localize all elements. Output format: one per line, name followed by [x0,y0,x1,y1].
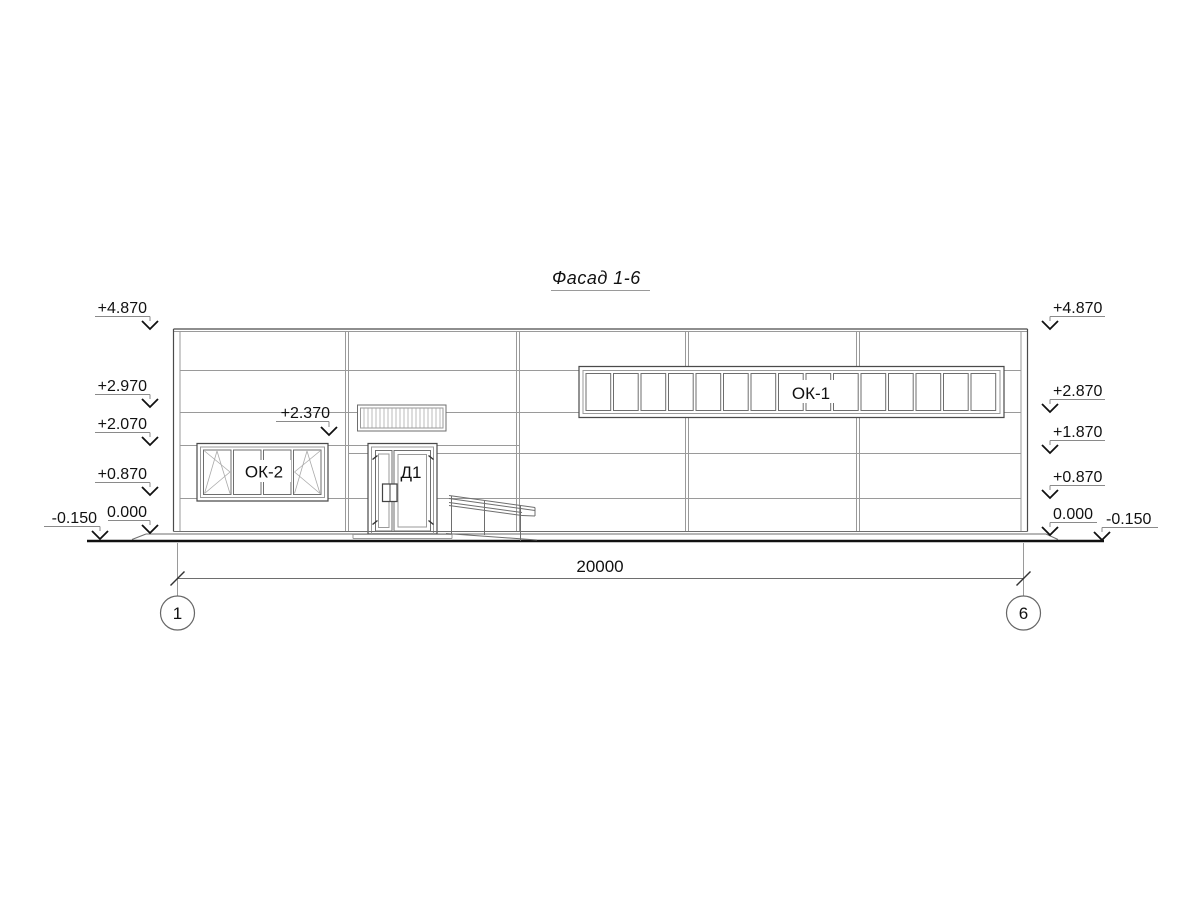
elevation-value: +4.870 [98,300,147,317]
elevation-mark: +4.870 [1042,300,1105,329]
door-threshold [353,535,452,539]
window-ok2: ОК-2 [197,444,328,502]
drawing-sheet: Фасад 1-6 [0,0,1200,900]
elevation-mark: -0.150 [44,510,108,539]
elevation-value: +4.870 [1053,300,1102,317]
elevation-mark: 0.000 [107,504,158,533]
elevation-value: +2.970 [98,378,147,395]
elevation-value: +2.870 [1053,383,1102,400]
strip-window-label: ОК-1 [792,384,830,403]
grid-axis-left-label: 1 [173,604,182,623]
facade-elevation-drawing: Фасад 1-6 [0,0,1200,900]
elevation-value: +0.870 [98,466,147,483]
grid-axes: 1 6 [161,596,1041,630]
elevation-mark: -0.150 [1094,511,1158,540]
elevation-marks-right: +4.870 +2.870 +1.870 +0.870 0.000 [1042,300,1158,540]
elevation-value: +1.870 [1053,424,1102,441]
elevation-mark: +2.870 [1042,383,1105,412]
window-label: ОК-2 [245,463,283,482]
elevation-value: +2.070 [98,416,147,433]
elevation-value: -0.150 [1106,511,1151,528]
elevation-value: +0.870 [1053,469,1102,486]
elevation-mark: +0.870 [95,466,158,495]
elevation-mark: +2.070 [95,416,158,445]
elevation-value: -0.150 [52,510,97,527]
strip-window-ok1: ОК-1 [579,367,1004,418]
elevation-marks-left: +4.870 +2.970 +2.070 +0.870 0.000 [44,300,158,539]
elevation-value: 0.000 [107,504,147,521]
elevation-mark: 0.000 [1042,506,1097,535]
dimension-value: 20000 [576,557,623,576]
elevation-value: +2.370 [281,405,330,422]
door-label: Д1 [401,463,422,482]
elevation-mark: +1.870 [1042,424,1105,453]
drawing-title-text: Фасад 1-6 [552,268,641,288]
plinth [132,534,1058,540]
elevation-mark-louver: +2.370 [276,405,337,435]
door-d1: Д1 [353,444,452,539]
grid-axis-right-label: 6 [1019,604,1028,623]
overall-dimension: 20000 [171,543,1031,596]
drawing-title: Фасад 1-6 [551,268,650,291]
elevation-mark: +0.870 [1042,469,1105,498]
elevation-mark: +4.870 [95,300,158,329]
elevation-value: 0.000 [1053,506,1093,523]
louver-grille [358,405,447,431]
elevation-mark: +2.970 [95,378,158,407]
